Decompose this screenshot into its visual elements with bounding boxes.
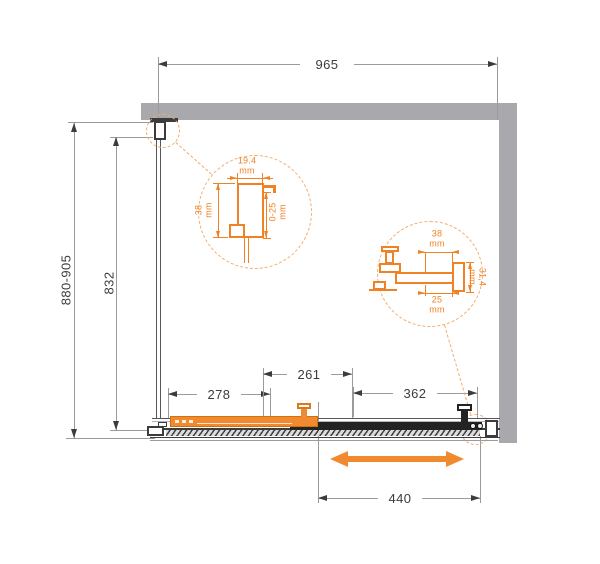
panel-mark bbox=[189, 420, 193, 423]
dimension-line bbox=[218, 183, 219, 238]
arrowhead bbox=[471, 495, 480, 501]
arrowhead bbox=[264, 231, 268, 238]
arrowhead bbox=[216, 231, 220, 238]
dim-label-overall-height: 880-905 bbox=[59, 255, 74, 306]
callout-leader-left bbox=[175, 142, 212, 175]
extension-line bbox=[68, 122, 153, 123]
arrowhead bbox=[71, 429, 77, 438]
panel-mark bbox=[175, 420, 179, 423]
arrow-shaft bbox=[348, 456, 446, 462]
arrowhead bbox=[158, 61, 167, 67]
dim-label-middle-segment: 261 bbox=[287, 367, 331, 382]
tick bbox=[425, 253, 426, 272]
extension-line bbox=[480, 436, 481, 503]
profile-notch bbox=[229, 224, 245, 238]
tick bbox=[425, 285, 426, 296]
fixed-glass-panel-edge bbox=[156, 140, 161, 418]
arrowhead bbox=[452, 291, 459, 295]
arrowhead bbox=[452, 250, 459, 254]
arrowhead bbox=[418, 291, 425, 295]
rail-hatch bbox=[166, 430, 480, 436]
arrowhead bbox=[216, 183, 220, 190]
arrowhead bbox=[263, 176, 270, 180]
dim-label-overall-width: 965 bbox=[300, 57, 354, 72]
arrowhead bbox=[71, 123, 77, 132]
sliding-door-panel bbox=[290, 422, 482, 430]
arrowhead bbox=[353, 390, 362, 396]
rail-bottom-line bbox=[150, 437, 500, 438]
dim-label-slide-travel: 440 bbox=[378, 491, 422, 506]
arrowhead bbox=[168, 391, 177, 397]
arrowhead bbox=[418, 250, 425, 254]
arrowhead bbox=[230, 176, 237, 180]
wall-bracket-right bbox=[485, 420, 498, 437]
arrowhead bbox=[263, 371, 272, 377]
arrowhead bbox=[113, 421, 119, 430]
arrowhead bbox=[113, 137, 119, 146]
arrowhead bbox=[264, 192, 268, 199]
detail-label-adjustment-range: 0-25 mm bbox=[269, 203, 288, 222]
detail-label-inner-width: 25 mm bbox=[429, 296, 444, 315]
arrowhead bbox=[468, 390, 477, 396]
corner-bracket-step bbox=[158, 422, 167, 427]
tick bbox=[466, 292, 474, 293]
arrowhead bbox=[318, 495, 327, 501]
arrow-head-right bbox=[446, 451, 464, 467]
dim-label-glass-height: 832 bbox=[102, 272, 117, 295]
roller-body bbox=[379, 263, 401, 273]
detail-label-profile-depth: 38 mm bbox=[195, 202, 214, 217]
fixed-panel-bracket-stem bbox=[301, 409, 307, 417]
shower-enclosure-technical-drawing: 965 880-905 832 278 261 bbox=[0, 0, 600, 564]
rail-end-cap bbox=[452, 262, 465, 292]
arrowhead bbox=[343, 371, 352, 377]
dimension-line bbox=[74, 123, 75, 438]
door-handle-stem bbox=[461, 411, 468, 422]
tick bbox=[452, 253, 453, 262]
profile-arm-end bbox=[273, 185, 276, 193]
dim-label-fixed-segment: 278 bbox=[197, 387, 241, 402]
wall-right bbox=[499, 103, 517, 443]
tick bbox=[263, 238, 271, 239]
corner-bracket-left bbox=[147, 426, 164, 436]
extension-line bbox=[66, 438, 155, 439]
fixed-panel bbox=[170, 416, 318, 427]
base-line bbox=[150, 440, 498, 441]
detail-label-rail-height: 31,4 mm bbox=[468, 268, 487, 286]
door-roller bbox=[477, 423, 483, 429]
arrow-head-left bbox=[330, 451, 348, 467]
door-handle-cap bbox=[457, 404, 472, 411]
arrowhead bbox=[488, 61, 497, 67]
roller-base-line bbox=[369, 289, 397, 291]
panel-mark-line bbox=[197, 423, 292, 424]
detail-label-rail-width: 38 mm bbox=[429, 230, 444, 249]
detail-label-profile-width: 19.4 mm bbox=[238, 157, 256, 176]
wall-top bbox=[141, 103, 517, 120]
glass-edge-detail bbox=[244, 238, 249, 263]
door-roller bbox=[470, 423, 476, 429]
dim-label-door-segment: 362 bbox=[393, 386, 437, 401]
extension-line bbox=[497, 57, 498, 120]
callout-leader-right bbox=[444, 325, 471, 415]
panel-mark bbox=[182, 420, 186, 423]
